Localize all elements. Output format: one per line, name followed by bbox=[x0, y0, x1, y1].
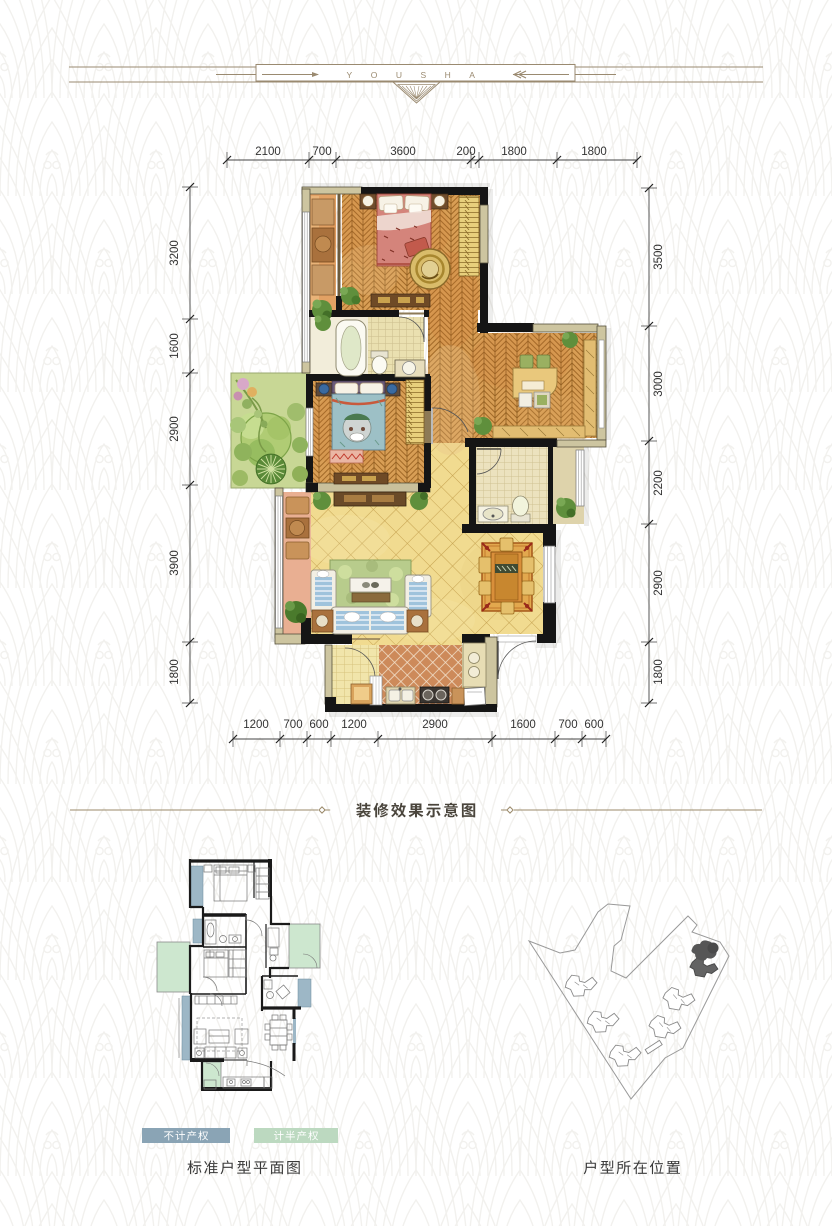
svg-text:YOUSHA: YOUSHA bbox=[347, 70, 494, 80]
svg-text:3000: 3000 bbox=[653, 371, 665, 397]
svg-text:1800: 1800 bbox=[169, 659, 181, 685]
svg-text:2900: 2900 bbox=[653, 570, 665, 596]
svg-text:1800: 1800 bbox=[653, 659, 665, 685]
svg-text:1800: 1800 bbox=[581, 146, 607, 158]
svg-text:3500: 3500 bbox=[653, 244, 665, 270]
svg-text:2900: 2900 bbox=[169, 416, 181, 442]
svg-text:1200: 1200 bbox=[243, 719, 269, 731]
svg-text:2900: 2900 bbox=[422, 719, 448, 731]
svg-text:600: 600 bbox=[584, 719, 603, 731]
svg-text:2100: 2100 bbox=[255, 146, 281, 158]
svg-text:3600: 3600 bbox=[390, 146, 416, 158]
svg-text:700: 700 bbox=[283, 719, 302, 731]
svg-text:2200: 2200 bbox=[653, 470, 665, 496]
svg-text:3900: 3900 bbox=[169, 550, 181, 576]
svg-text:1600: 1600 bbox=[169, 333, 181, 359]
svg-text:1600: 1600 bbox=[510, 719, 536, 731]
svg-text:3200: 3200 bbox=[169, 240, 181, 266]
svg-text:700: 700 bbox=[558, 719, 577, 731]
svg-text:1800: 1800 bbox=[501, 146, 527, 158]
svg-text:1200: 1200 bbox=[341, 719, 367, 731]
svg-text:700: 700 bbox=[312, 146, 331, 158]
svg-text:200: 200 bbox=[456, 146, 475, 158]
svg-text:600: 600 bbox=[309, 719, 328, 731]
